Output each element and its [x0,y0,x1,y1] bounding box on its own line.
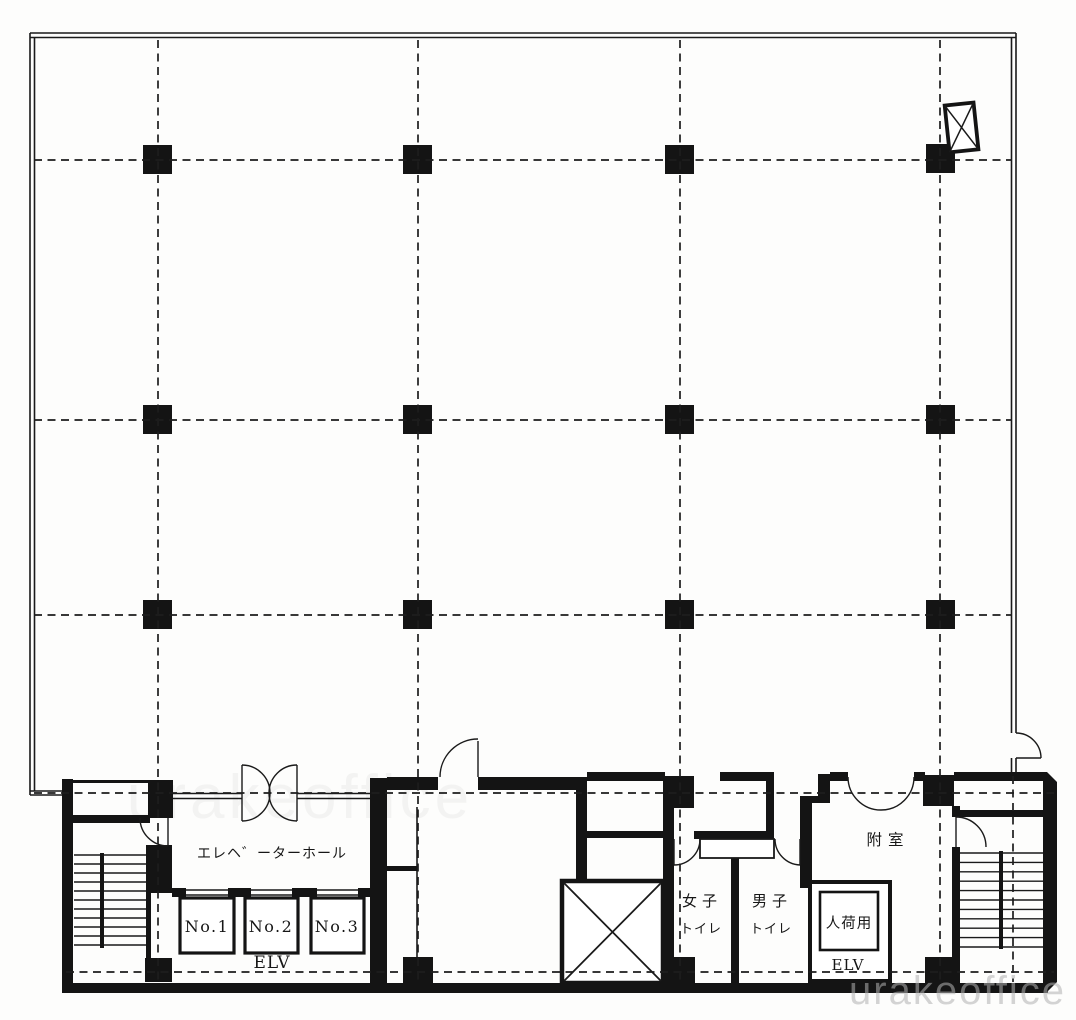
elevator-car-1-label: No.1 [185,917,230,936]
anteroom [810,777,914,981]
mens-toilet-label-line2: トイレ [750,922,792,937]
anteroom-label: 附室 [866,831,909,849]
elevator-car-3-label: No.3 [315,917,360,936]
plumbing-alcove [700,839,774,858]
outer-wall [30,33,1016,795]
floor-plan-canvas: urakeoffice [0,0,1076,1020]
floor-plan-page: urakeoffice [0,0,1076,1020]
stair-rail [999,851,1003,949]
exterior-door-swing-icon [1016,733,1041,758]
mens-toilet-label-line1: 男子 [752,892,792,910]
elevator-hall-label: エレヘ゛ーターホール [197,846,347,862]
womens-toilet-label-line2: トイレ [680,922,722,937]
mens-toilet-door-swing-icon [775,839,800,865]
duct-shaft-x-icon [945,103,979,153]
structural-columns [143,144,955,629]
elevator-car-2-label: No.2 [249,917,294,936]
stair-rail [100,853,104,948]
stair-right-door-swing-icon [956,817,986,847]
column [148,780,173,818]
freight-elevator-label: 人荷用 [826,915,873,932]
column [923,775,954,806]
watermark-text-bottom-right: urakeoffice [849,969,1066,1013]
shaft-x-icon [562,881,663,983]
womens-toilet-door-swing-icon [674,839,700,865]
womens-toilet-label-line1: 女子 [682,892,722,910]
staircase-left [74,853,146,948]
staircase-right [952,806,1043,983]
elevator-bank-label: ELV [254,953,291,973]
watermark-text-center: urakeoffice [127,763,473,832]
stair-treads [74,855,146,945]
